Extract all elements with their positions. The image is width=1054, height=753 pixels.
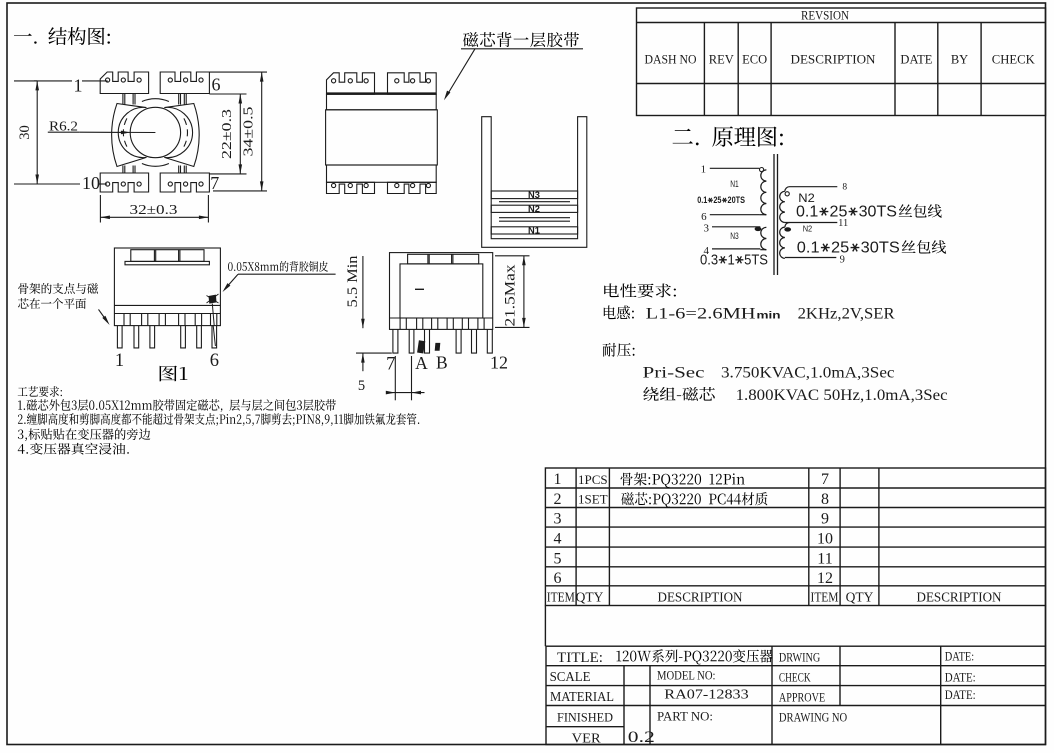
svg-text:DASH NO: DASH NO — [645, 53, 697, 67]
svg-text:ITEM: ITEM — [547, 589, 575, 604]
svg-text:8: 8 — [842, 183, 847, 193]
svg-text:QTY: QTY — [846, 589, 874, 604]
svg-text:RA07-12833: RA07-12833 — [664, 688, 748, 703]
svg-text:2KHz,2V,SER: 2KHz,2V,SER — [798, 305, 896, 322]
svg-text:DATE:: DATE: — [945, 650, 975, 664]
svg-text:DESCRIPTION: DESCRIPTION — [791, 53, 876, 67]
svg-text:FINISHED: FINISHED — [557, 710, 613, 725]
svg-text:1: 1 — [115, 351, 124, 371]
svg-text:8: 8 — [821, 491, 829, 508]
svg-text:ECO: ECO — [742, 53, 767, 67]
svg-text:4: 4 — [554, 530, 562, 547]
svg-text:1SET: 1SET — [578, 492, 608, 507]
svg-text:3.750KVAC,1.0mA,3Sec: 3.750KVAC,1.0mA,3Sec — [721, 365, 895, 382]
svg-text:MATERIAL: MATERIAL — [550, 689, 614, 704]
svg-text:min: min — [757, 310, 781, 321]
svg-text:REVSION: REVSION — [801, 9, 849, 23]
svg-text:25: 25 — [713, 195, 721, 205]
svg-text:7: 7 — [386, 355, 395, 375]
svg-text:1: 1 — [701, 163, 707, 175]
svg-text:SCALE: SCALE — [550, 669, 591, 684]
svg-text:12: 12 — [817, 570, 833, 587]
svg-text:20TS: 20TS — [728, 195, 745, 205]
svg-text:VER: VER — [572, 731, 601, 746]
svg-text:30TS: 30TS — [861, 240, 900, 257]
svg-text:3: 3 — [703, 223, 709, 235]
svg-text:REV: REV — [709, 53, 734, 67]
svg-text:L1-6=2.6MH: L1-6=2.6MH — [646, 305, 756, 322]
svg-text:CHECK: CHECK — [992, 53, 1035, 67]
svg-text:30: 30 — [17, 125, 33, 140]
svg-text:APPROVE: APPROVE — [779, 691, 826, 705]
svg-text:7: 7 — [821, 471, 829, 488]
svg-text:10: 10 — [82, 173, 100, 193]
svg-text:0.1: 0.1 — [697, 195, 707, 205]
svg-text:5: 5 — [358, 378, 365, 394]
svg-text:Pri-Sec: Pri-Sec — [643, 365, 705, 382]
svg-text:BY: BY — [951, 53, 968, 67]
svg-text:QTY: QTY — [576, 589, 604, 604]
svg-text:5TS: 5TS — [744, 252, 768, 268]
svg-text:11: 11 — [838, 218, 848, 229]
svg-text:DATE:: DATE: — [945, 687, 976, 702]
svg-text:DESCRIPTION: DESCRIPTION — [658, 589, 743, 604]
svg-text:0.3: 0.3 — [700, 252, 718, 268]
svg-text:1PCS: 1PCS — [578, 472, 608, 487]
svg-text:N2: N2 — [803, 223, 813, 233]
svg-text:MODEL NO:: MODEL NO: — [657, 668, 716, 683]
svg-text:30TS: 30TS — [859, 204, 897, 221]
svg-text:11: 11 — [817, 550, 832, 567]
svg-text:0.1: 0.1 — [796, 204, 818, 221]
svg-text:1: 1 — [554, 471, 562, 488]
svg-text:9: 9 — [821, 511, 829, 528]
svg-text:CHECK: CHECK — [779, 671, 811, 685]
svg-text:TITLE:: TITLE: — [557, 650, 603, 666]
svg-text:6: 6 — [554, 570, 562, 587]
svg-text:N3: N3 — [528, 190, 540, 200]
svg-text:12: 12 — [490, 353, 508, 373]
svg-text:22±0.3: 22±0.3 — [219, 109, 234, 159]
svg-text:25: 25 — [831, 240, 849, 257]
svg-text:2: 2 — [554, 491, 562, 508]
svg-text:N1: N1 — [528, 226, 540, 236]
svg-text:N1: N1 — [730, 179, 739, 190]
svg-text:DATE:: DATE: — [945, 670, 976, 685]
svg-text:PART NO:: PART NO: — [657, 709, 713, 724]
svg-text:6: 6 — [701, 211, 707, 223]
svg-text:6: 6 — [212, 75, 221, 95]
svg-text:5: 5 — [554, 550, 562, 567]
svg-text:B: B — [436, 353, 448, 373]
svg-text:A: A — [415, 353, 428, 373]
svg-text:DRAWING NO: DRAWING NO — [779, 710, 847, 725]
svg-text:0.1: 0.1 — [797, 240, 820, 257]
svg-text:DRWING: DRWING — [779, 650, 820, 665]
svg-text:0.2: 0.2 — [628, 729, 655, 746]
svg-text:21.5Max: 21.5Max — [503, 264, 519, 327]
svg-text:32±0.3: 32±0.3 — [130, 202, 178, 217]
svg-text:R6.2: R6.2 — [49, 119, 78, 134]
svg-text:34±0.5: 34±0.5 — [240, 106, 255, 156]
svg-text:1.800KVAC 50Hz,1.0mA,3Sec: 1.800KVAC 50Hz,1.0mA,3Sec — [736, 387, 948, 404]
svg-text:5.5 Min: 5.5 Min — [345, 255, 361, 308]
svg-text:DATE: DATE — [900, 53, 932, 67]
svg-text:7: 7 — [210, 173, 219, 193]
svg-text:DESCRIPTION: DESCRIPTION — [917, 589, 1002, 604]
svg-text:N2: N2 — [528, 204, 540, 214]
svg-text:N3: N3 — [730, 231, 739, 242]
svg-text:ITEM: ITEM — [811, 589, 839, 604]
svg-text:1: 1 — [74, 76, 83, 96]
svg-text:10: 10 — [817, 530, 833, 547]
svg-text:3: 3 — [554, 511, 562, 528]
svg-text:1: 1 — [727, 252, 734, 268]
svg-text:6: 6 — [210, 351, 219, 371]
